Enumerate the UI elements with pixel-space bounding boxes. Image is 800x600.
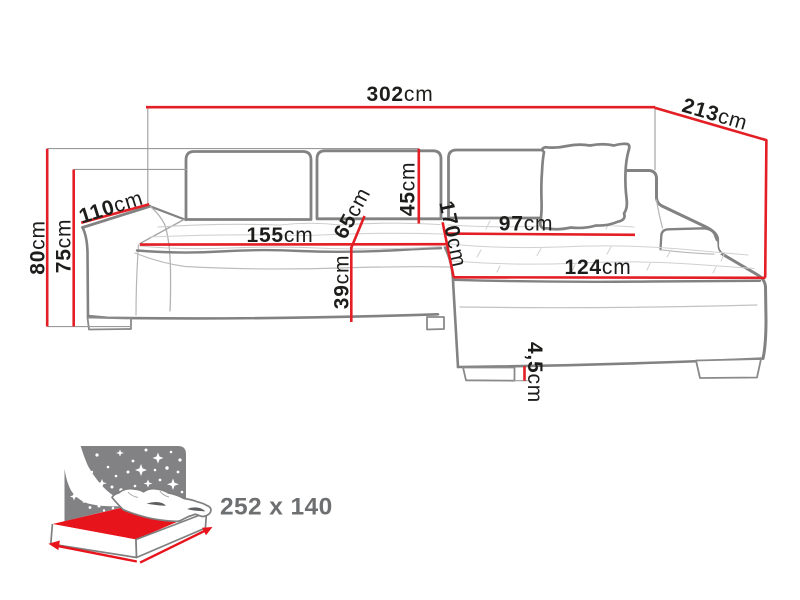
- svg-text:80cm: 80cm: [27, 220, 50, 275]
- svg-text:45cm: 45cm: [397, 162, 420, 217]
- svg-text:75cm: 75cm: [53, 219, 76, 274]
- svg-text:39cm: 39cm: [331, 255, 354, 310]
- svg-text:124cm: 124cm: [564, 256, 631, 279]
- svg-text:155cm: 155cm: [246, 224, 313, 247]
- svg-text:302cm: 302cm: [366, 83, 433, 106]
- svg-text:4,5cm: 4,5cm: [523, 342, 546, 403]
- svg-text:97cm: 97cm: [499, 213, 554, 236]
- svg-text:252 x 140: 252 x 140: [220, 494, 333, 521]
